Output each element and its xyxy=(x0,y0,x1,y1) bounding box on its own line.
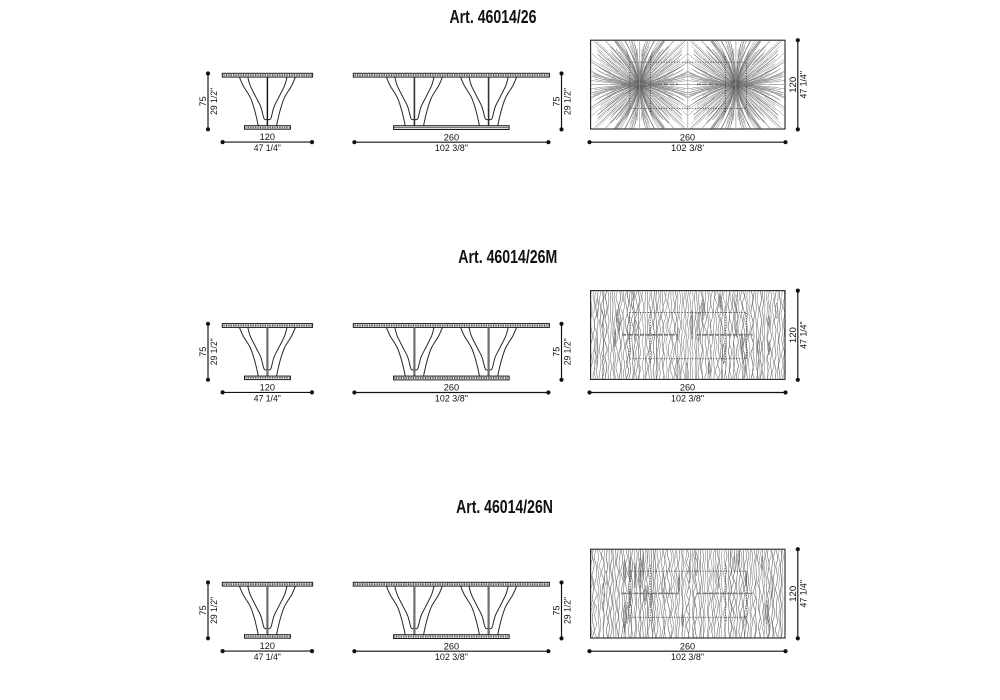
svg-text:29 1/2": 29 1/2" xyxy=(562,597,573,624)
svg-text:29 1/2": 29 1/2" xyxy=(562,88,573,115)
svg-text:75: 75 xyxy=(552,97,563,107)
svg-text:102 3/8": 102 3/8" xyxy=(435,652,468,663)
svg-text:Art. 46014/26N: Art. 46014/26N xyxy=(456,496,553,517)
svg-text:75: 75 xyxy=(552,347,563,357)
svg-text:120: 120 xyxy=(260,641,275,652)
svg-text:47 1/4": 47 1/4" xyxy=(799,321,810,349)
svg-text:Art. 46014/26: Art. 46014/26 xyxy=(450,6,537,27)
svg-text:47 1/4": 47 1/4" xyxy=(799,580,810,608)
svg-text:29 1/2": 29 1/2" xyxy=(209,88,220,115)
svg-text:102 3/8': 102 3/8' xyxy=(671,143,704,154)
svg-text:29 1/2": 29 1/2" xyxy=(562,338,573,365)
svg-text:47 1/4": 47 1/4" xyxy=(254,143,281,154)
svg-text:47 1/4": 47 1/4" xyxy=(254,393,281,404)
svg-text:75: 75 xyxy=(198,605,209,615)
svg-text:47 1/4": 47 1/4" xyxy=(799,71,810,99)
svg-text:102 3/8": 102 3/8" xyxy=(435,143,468,154)
svg-text:75: 75 xyxy=(198,96,209,106)
svg-text:120: 120 xyxy=(788,327,799,343)
svg-text:29 1/2": 29 1/2" xyxy=(209,338,220,365)
svg-text:102 3/8": 102 3/8" xyxy=(671,393,704,404)
svg-text:75: 75 xyxy=(552,606,563,616)
svg-text:102 3/8": 102 3/8" xyxy=(435,393,468,404)
svg-text:260: 260 xyxy=(680,641,695,652)
svg-text:120: 120 xyxy=(260,383,275,394)
svg-text:260: 260 xyxy=(444,383,459,394)
svg-text:75: 75 xyxy=(198,347,209,357)
svg-text:47 1/4": 47 1/4" xyxy=(254,652,281,663)
svg-text:260: 260 xyxy=(680,383,695,394)
svg-text:260: 260 xyxy=(444,641,459,652)
svg-text:Art. 46014/26M: Art. 46014/26M xyxy=(458,246,557,267)
svg-text:102 3/8": 102 3/8" xyxy=(671,652,704,663)
svg-text:120: 120 xyxy=(788,77,799,93)
svg-text:260: 260 xyxy=(444,132,459,143)
svg-text:29 1/2": 29 1/2" xyxy=(209,597,220,624)
svg-text:260: 260 xyxy=(680,132,695,143)
svg-text:120: 120 xyxy=(788,586,799,602)
svg-text:120: 120 xyxy=(260,132,275,143)
